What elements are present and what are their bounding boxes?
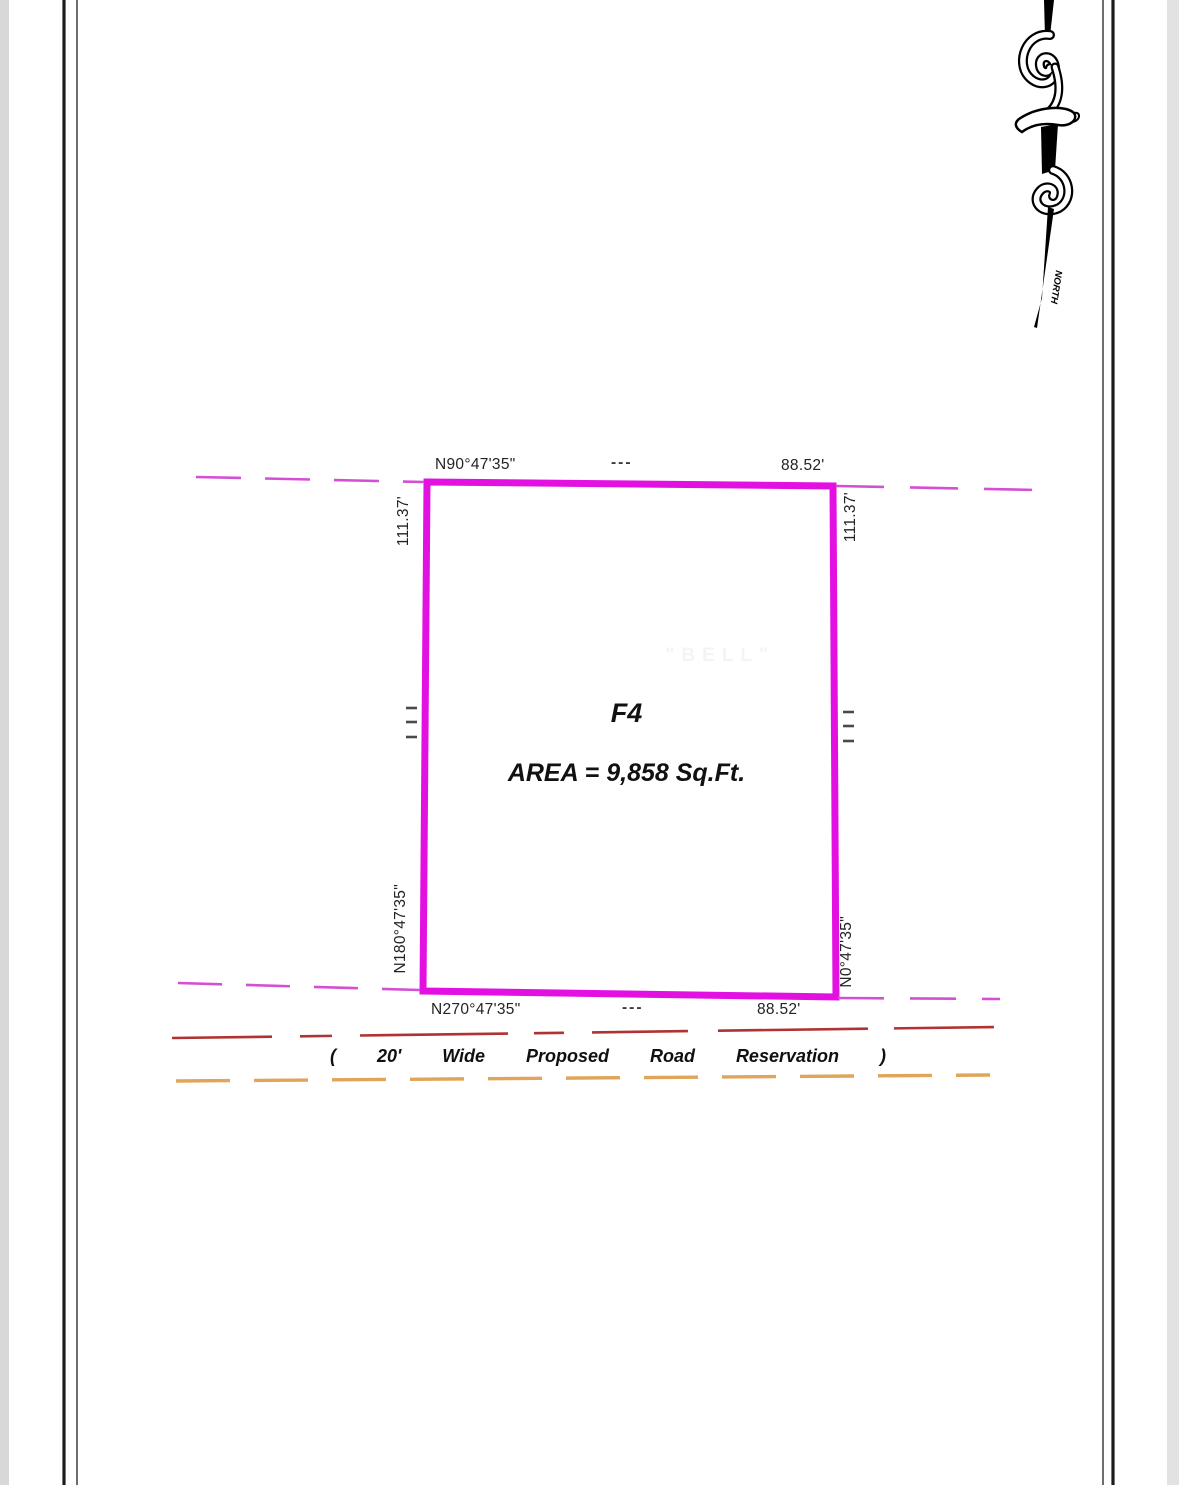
north-label: NORTH xyxy=(1048,270,1064,306)
faint-ghost-text: "BELL" xyxy=(497,645,775,667)
extension-line-top-right xyxy=(836,486,1038,490)
extension-line-top-left xyxy=(196,477,424,482)
road-caption-proposed: Proposed xyxy=(526,1046,609,1067)
right-edge-distance: 111.37' xyxy=(842,492,860,542)
bottom-edge-distance: 88.52' xyxy=(757,1001,801,1019)
road-caption-open-paren: ( xyxy=(330,1046,336,1067)
left-edge-bearing: N180°47'35" xyxy=(392,884,410,974)
road-caption-close-paren: ) xyxy=(880,1046,886,1067)
left-edge-distance: 111.37' xyxy=(395,496,413,546)
road-caption-reservation: Reservation xyxy=(736,1046,839,1067)
left-mid-ticks xyxy=(406,708,417,737)
bottom-edge-bearing: N270°47'35" xyxy=(431,1001,521,1019)
plat-linework xyxy=(0,0,1179,1485)
right-mid-ticks xyxy=(843,712,854,741)
extension-line-bottom-left xyxy=(178,983,420,990)
top-edge-ticks: --- xyxy=(611,454,633,472)
road-caption-wide: Wide xyxy=(442,1046,485,1067)
road-centerline-red xyxy=(172,1027,996,1038)
parcel-boundary xyxy=(423,482,836,997)
right-edge-bearing: N0°47'35" xyxy=(838,916,856,988)
parcel-area: AREA = 9,858 Sq.Ft. xyxy=(420,759,833,788)
road-reservation-caption: ( 20' Wide Proposed Road Reservation ) xyxy=(330,1046,886,1067)
parcel-name: F4 xyxy=(420,698,833,729)
top-edge-bearing: N90°47'35" xyxy=(435,456,516,474)
bottom-edge-ticks: --- xyxy=(622,999,644,1017)
north-arrow-ornament: NORTH xyxy=(1012,0,1084,332)
top-edge-distance: 88.52' xyxy=(781,457,825,475)
plat-sheet: NORTH N90°47'35" --- 88.52' 111.37' 111.… xyxy=(0,0,1179,1485)
north-arrow-tail xyxy=(1034,207,1054,328)
road-caption-road: Road xyxy=(650,1046,695,1067)
road-caption-width: 20' xyxy=(377,1046,401,1067)
extension-line-bottom-right xyxy=(838,998,1000,999)
road-edge-orange xyxy=(176,1075,990,1081)
